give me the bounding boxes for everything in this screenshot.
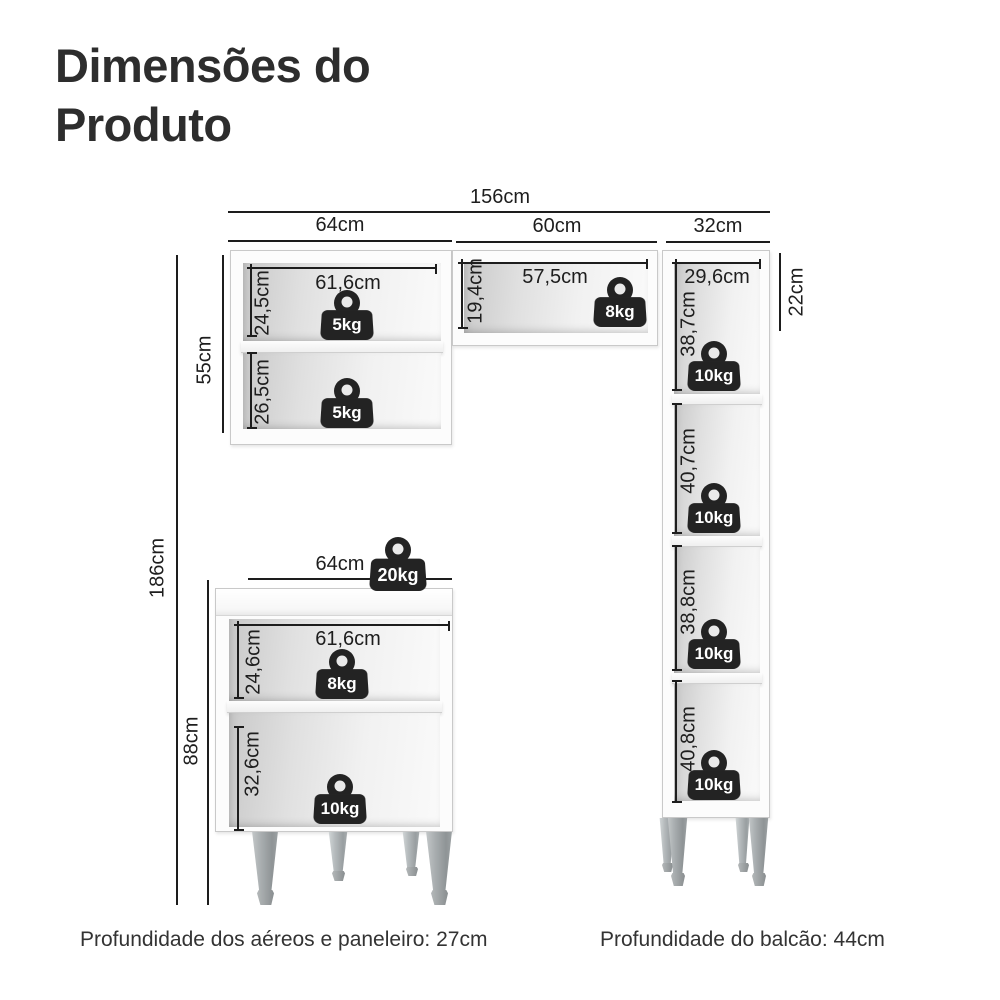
dim-line-upper-cabinet-width [228,240,452,242]
dim-label-upper-cabinet-width: 64cm [316,214,365,237]
dim-line-tall-inner-width [675,262,761,264]
weight-label: 5kg [332,403,361,423]
weight-label: 10kg [695,775,734,795]
weight-icon-tall-1: 10kg [687,341,741,391]
page-title-line-1: Dimensões do [55,36,370,95]
weight-icon-shelf: 8kg [593,277,647,327]
dim-label-upper-cabinet-height: 55cm [194,336,217,385]
weight-label: 10kg [695,508,734,528]
base-cabinet-front-right-leg [425,832,453,893]
dim-label-base-cabinet-height: 88cm [181,717,204,766]
page-title-line-2: Produto [55,95,370,154]
depth-note-balcao: Profundidade do balcão: 44cm [600,928,885,952]
tall-cabinet-back-right-foot [738,863,749,872]
weight-label: 10kg [695,644,734,664]
product-dimensions-diagram: Dimensões do Produto [0,0,1000,1000]
weight-label: 5kg [332,315,361,335]
dim-label-shelf-inner-height: 19,4cm [465,258,488,324]
weight-label: 20kg [377,565,418,586]
dim-label-shelf-unit-height: 22cm [786,268,809,317]
dim-line-shelf-unit-height [779,253,781,331]
weight-icon-tall-3: 10kg [687,619,741,669]
tall-shelf-3 [672,673,762,684]
tall-cabinet-back-left-foot [662,863,673,872]
depth-note-aereos: Profundidade dos aéreos e paneleiro: 27c… [80,928,487,952]
weight-icon-tall-2: 10kg [687,483,741,533]
dim-line-base-top-compartment [237,624,239,699]
dim-label-base-bottom-compartment: 32,6cm [242,731,265,797]
base-cabinet-front-left-foot [257,890,274,905]
tall-shelf-2 [672,536,762,547]
dim-label-total-height: 186cm [147,538,170,598]
dim-line-tall-cabinet-width [666,241,770,243]
weight-label: 10kg [695,366,734,386]
dim-label-upper-bottom-compartment: 26,5cm [252,359,275,425]
weight-icon-upper-top: 5kg [320,290,374,340]
page-title: Dimensões do Produto [55,36,370,154]
dim-label-base-width: 64cm [316,553,365,576]
weight-icon-base-top: 20kg [369,537,427,591]
tall-cabinet-front-left-foot [671,873,685,886]
dim-line-shelf-inner-width [461,262,648,264]
dim-label-base-top-compartment: 24,6cm [243,629,266,695]
base-cabinet-front-left-leg [251,832,279,893]
weight-icon-base-middle: 8kg [315,649,369,699]
dim-label-tall-inner-width: 29,6cm [684,266,750,289]
dim-line-shelf-width [456,241,657,243]
base-shelf [227,701,442,713]
base-cabinet-back-right-leg [402,832,420,870]
dim-line-base-inner-width [237,624,450,626]
weight-label: 8kg [327,674,356,694]
dim-line-upper-inner-width [250,267,437,269]
dim-label-tall-cabinet-width: 32cm [694,215,743,238]
weight-label: 10kg [321,799,360,819]
dim-line-shelf-inner-height [461,262,463,329]
base-cabinet-back-left-leg [328,832,348,874]
tall-cabinet-back-right-leg [735,818,750,866]
dim-line-base-cabinet-height [207,580,209,905]
upper-left-shelf [241,341,443,353]
dim-label-shelf-width: 60cm [533,215,582,238]
dim-line-base-bottom-compartment [237,726,239,831]
dim-label-total-width: 156cm [470,186,530,209]
weight-icon-tall-4: 10kg [687,750,741,800]
dim-label-base-inner-width: 61,6cm [315,628,381,651]
dim-line-total-height [176,255,178,905]
base-cabinet-top-panel [216,589,452,616]
dim-label-shelf-inner-width: 57,5cm [522,266,588,289]
weight-icon-upper-bottom: 5kg [320,378,374,428]
base-cabinet-back-right-foot [406,867,418,876]
dim-line-total-width [228,211,770,213]
tall-cabinet-front-right-leg [748,818,769,876]
dim-label-upper-top-compartment: 24,5cm [252,270,275,336]
tall-cabinet-front-right-foot [752,873,766,886]
dim-line-upper-cabinet-height [222,255,224,433]
tall-shelf-1 [672,394,762,405]
weight-label: 8kg [605,302,634,322]
weight-icon-base-bottom: 10kg [313,774,367,824]
base-cabinet-back-left-foot [332,871,345,881]
base-cabinet-front-right-foot [431,890,448,905]
